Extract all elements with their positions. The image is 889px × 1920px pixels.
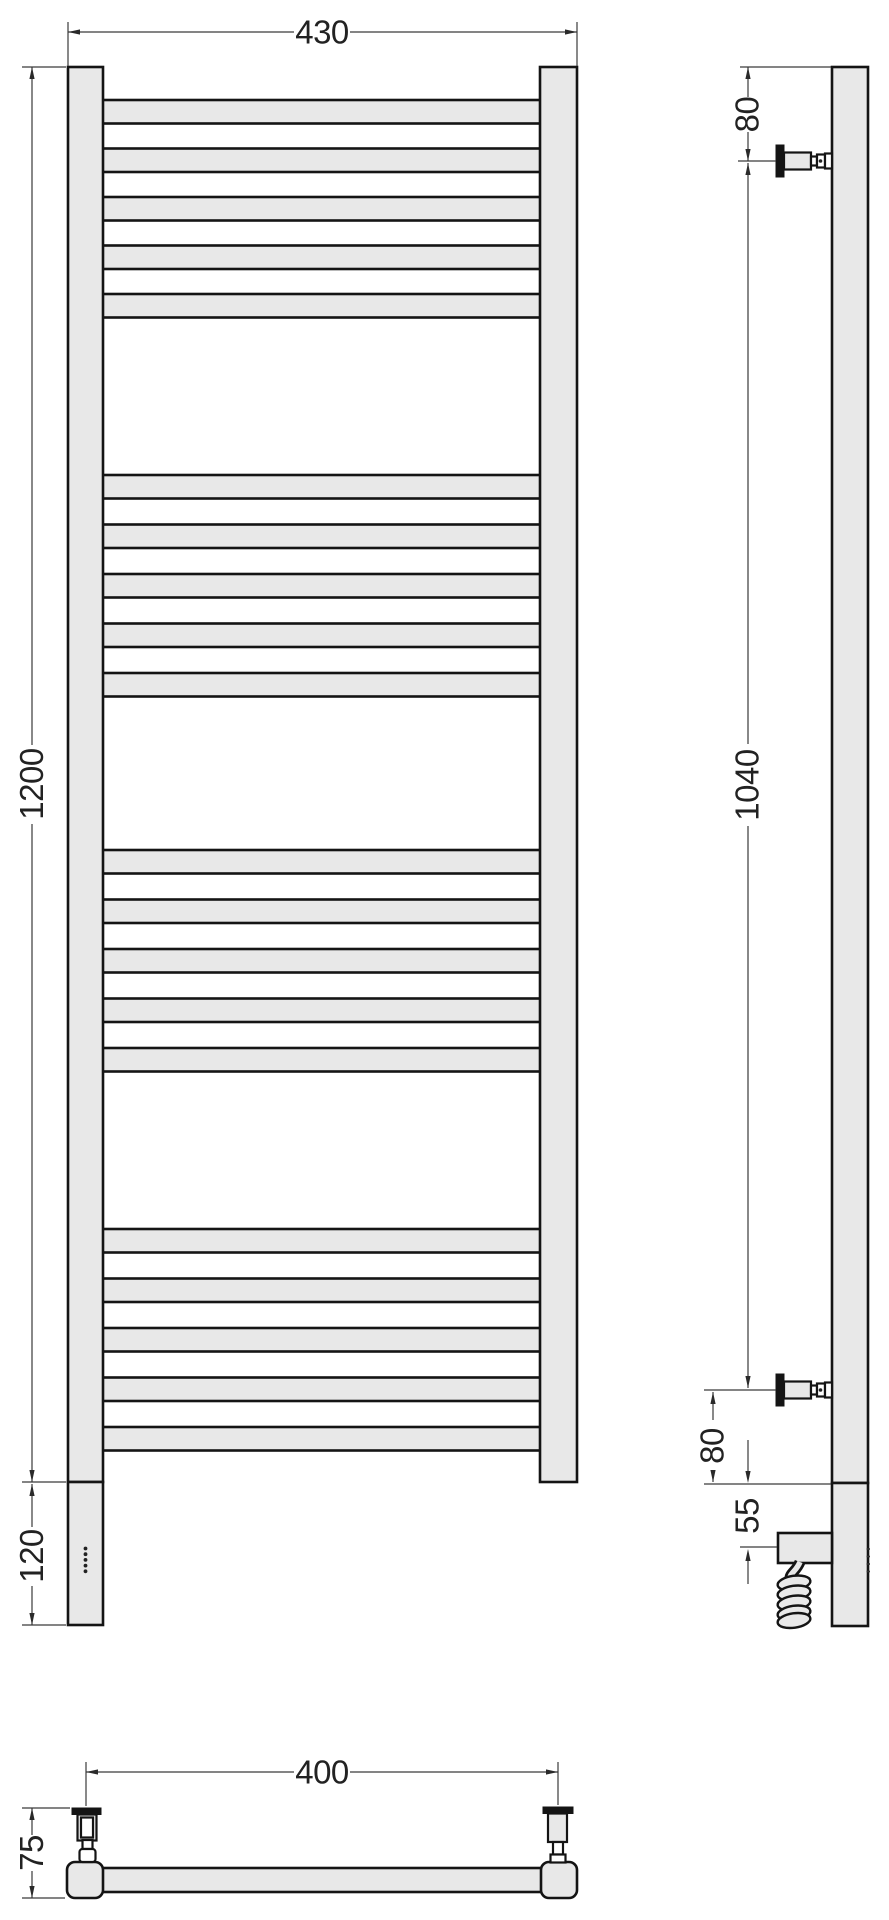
side-profile [832,67,868,1483]
rung-bar [101,900,542,924]
dim-label-55: 55 [729,1498,766,1534]
rung-bar [101,100,542,124]
rung-bar [101,197,542,221]
rung-bar [101,149,542,173]
dim-label-1040: 1040 [729,749,766,821]
dim-label-80-bottom: 80 [694,1428,731,1464]
rung-bar [101,1378,542,1402]
rung-bar [101,1048,542,1072]
rung-bar [101,999,542,1023]
front-view [68,67,577,1625]
rung-bar [101,475,542,499]
rung-bar [101,246,542,270]
wall-bracket-top [776,145,832,177]
rung-bar [101,1229,542,1253]
bottom-view: 400 75 [13,1754,577,1899]
dim-label-75: 75 [13,1835,50,1871]
rung-bar [101,1328,542,1352]
dim-label-120: 120 [13,1529,50,1583]
heating-element [777,1533,832,1630]
plan-left-corner [67,1862,103,1898]
rung-bars-group [101,100,542,1451]
dim-front-width: 430 [68,14,577,67]
rung-bar [101,673,542,697]
dim-side-top-offset: 80 [729,67,766,161]
dim-label-400: 400 [295,1754,349,1791]
rung-bar [101,1427,542,1451]
dim-side-element-offset: 55 [729,1440,766,1584]
side-view [704,67,870,1630]
plan-tube [101,1868,543,1892]
plan-left-bracket [72,1808,101,1862]
plan-right-bracket [543,1807,573,1863]
plan-right-corner [541,1862,577,1898]
towel-rail-drawing: 430 1200 120 [0,0,889,1920]
dim-label-1200: 1200 [13,748,50,820]
dim-side-bottom-offset: 80 [694,1392,731,1482]
rung-bar [101,949,542,973]
front-right-rail [540,67,577,1482]
dim-bottom-bracket-spacing: 400 [86,1754,558,1807]
dim-label-80-top: 80 [729,97,766,133]
dim-front-height: 1200 [13,67,66,1482]
dim-label-430: 430 [295,14,349,51]
front-left-rail [68,67,103,1482]
coiled-cable [777,1562,812,1630]
rung-bar [101,525,542,549]
dim-side-bracket-span: 1040 [729,163,766,1388]
rung-bar [101,624,542,648]
dim-front-bottom-section: 120 [13,1484,66,1625]
technical-drawing-canvas: 430 1200 120 [0,0,889,1920]
heating-element-box [778,1533,832,1563]
rung-bar [101,1279,542,1303]
side-control-housing [832,1483,868,1626]
rung-bar [101,294,542,318]
rung-bar [101,574,542,598]
rung-bar [101,850,542,874]
wall-bracket-bottom [776,1374,832,1406]
dim-bottom-wall-depth: 75 [13,1808,70,1898]
